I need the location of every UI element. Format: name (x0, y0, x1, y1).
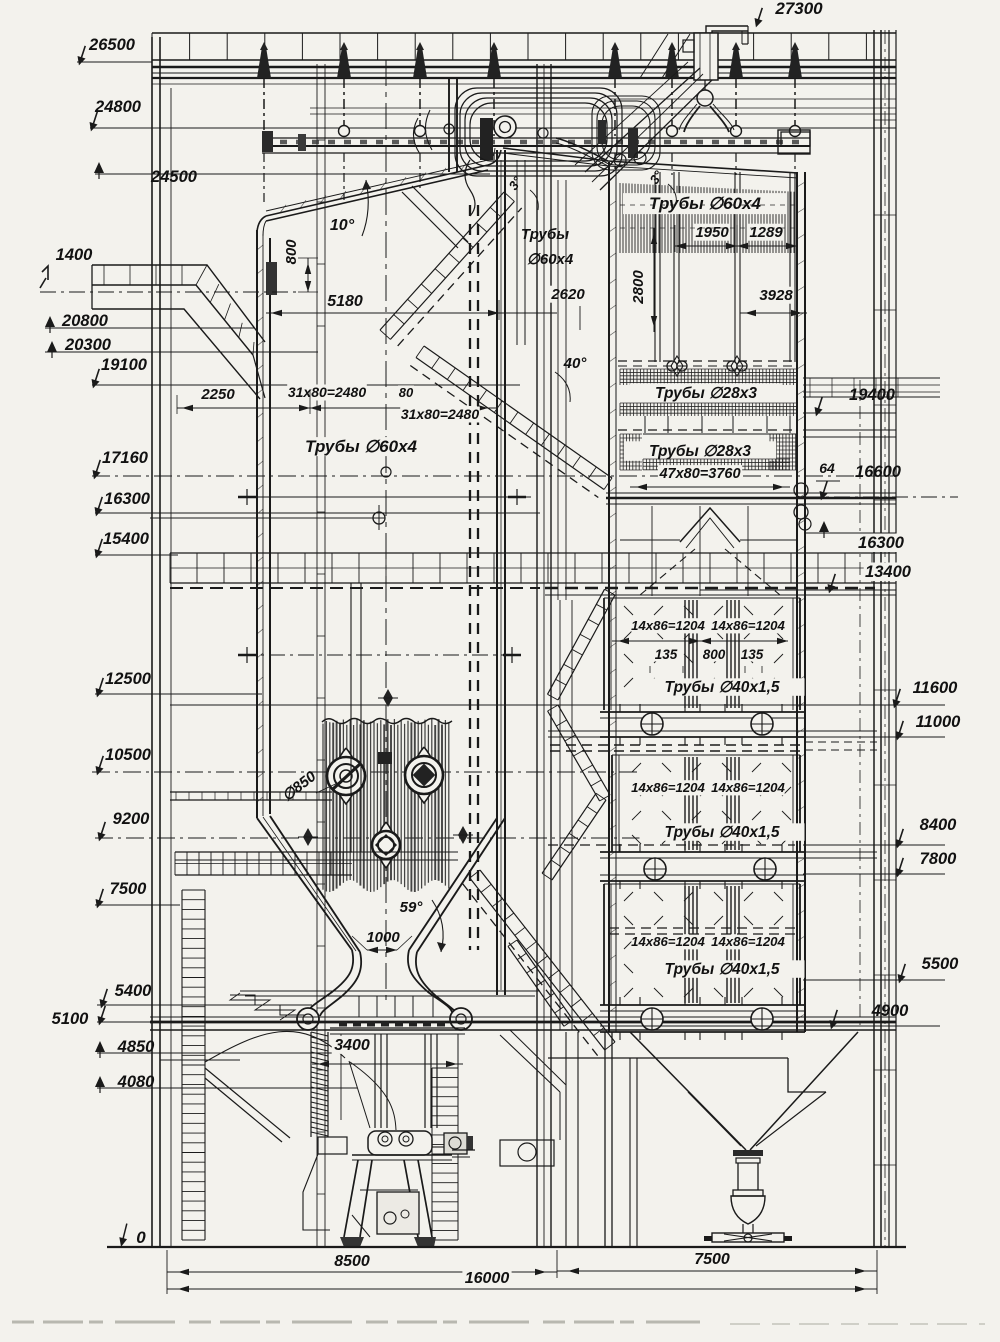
svg-text:5100: 5100 (52, 1010, 90, 1028)
svg-text:26500: 26500 (88, 36, 136, 54)
svg-text:14х86=1204: 14х86=1204 (631, 618, 705, 633)
svg-text:14х86=1204: 14х86=1204 (631, 934, 705, 949)
svg-text:20800: 20800 (61, 312, 109, 330)
svg-text:14х86=1204: 14х86=1204 (631, 780, 705, 795)
svg-text:47х80=3760: 47х80=3760 (658, 466, 740, 482)
svg-text:15400: 15400 (103, 530, 150, 548)
svg-text:3928: 3928 (759, 287, 793, 304)
svg-text:4080: 4080 (117, 1073, 156, 1091)
svg-text:1000: 1000 (366, 929, 400, 946)
svg-text:7500: 7500 (694, 1251, 730, 1268)
svg-text:12500: 12500 (105, 670, 152, 688)
svg-text:59°: 59° (400, 899, 424, 916)
svg-text:13400: 13400 (865, 563, 912, 581)
svg-text:11000: 11000 (916, 713, 961, 731)
svg-text:2800: 2800 (630, 270, 647, 305)
svg-text:5500: 5500 (922, 955, 960, 973)
svg-text:4850: 4850 (117, 1038, 156, 1056)
svg-text:∅60х4: ∅60х4 (527, 251, 574, 268)
svg-text:800: 800 (283, 239, 300, 265)
svg-text:800: 800 (703, 647, 726, 662)
svg-text:135: 135 (741, 647, 764, 662)
svg-text:135: 135 (655, 647, 678, 662)
svg-text:27300: 27300 (774, 0, 823, 18)
svg-text:11600: 11600 (913, 679, 958, 697)
svg-text:4900: 4900 (871, 1002, 910, 1020)
svg-text:Трубы ∅28х3: Трубы ∅28х3 (649, 443, 751, 460)
svg-text:16000: 16000 (465, 1270, 510, 1287)
svg-text:19100: 19100 (101, 356, 148, 374)
svg-text:31х80=2480: 31х80=2480 (288, 384, 366, 400)
svg-text:8400: 8400 (920, 816, 958, 834)
svg-text:16300: 16300 (104, 490, 151, 508)
svg-text:14х86=1204: 14х86=1204 (711, 780, 785, 795)
svg-text:16600: 16600 (855, 463, 902, 481)
svg-text:Трубы ∅60х4: Трубы ∅60х4 (649, 194, 762, 213)
svg-text:10°: 10° (330, 217, 355, 234)
svg-text:1400: 1400 (56, 246, 94, 264)
svg-text:Трубы ∅28х3: Трубы ∅28х3 (655, 385, 757, 402)
svg-text:24500: 24500 (150, 168, 198, 186)
svg-text:2620: 2620 (550, 286, 585, 303)
svg-text:9200: 9200 (113, 810, 151, 828)
svg-text:16300: 16300 (858, 534, 905, 552)
svg-text:Трубы ∅40х1,5: Трубы ∅40х1,5 (664, 679, 779, 696)
svg-text:Трубы: Трубы (521, 226, 569, 243)
svg-text:10500: 10500 (105, 746, 152, 764)
svg-text:20300: 20300 (64, 336, 112, 354)
svg-text:14х86=1204: 14х86=1204 (711, 934, 785, 949)
svg-text:1289: 1289 (749, 224, 783, 241)
svg-text:Трубы ∅40х1,5: Трубы ∅40х1,5 (664, 961, 779, 978)
svg-text:5180: 5180 (327, 293, 363, 310)
svg-text:Трубы ∅60х4: Трубы ∅60х4 (305, 437, 418, 456)
svg-text:2250: 2250 (200, 386, 235, 403)
svg-text:31х80=2480: 31х80=2480 (401, 406, 479, 422)
svg-text:64: 64 (819, 460, 835, 476)
svg-text:1950: 1950 (695, 224, 729, 241)
svg-text:14х86=1204: 14х86=1204 (711, 618, 785, 633)
svg-text:Трубы ∅40х1,5: Трубы ∅40х1,5 (664, 824, 779, 841)
svg-text:19400: 19400 (849, 386, 896, 404)
svg-text:7800: 7800 (920, 850, 958, 868)
svg-text:7500: 7500 (110, 880, 148, 898)
svg-text:80: 80 (399, 385, 414, 400)
svg-text:8500: 8500 (334, 1253, 370, 1270)
svg-text:24800: 24800 (94, 98, 142, 116)
svg-text:5400: 5400 (115, 982, 153, 1000)
svg-text:17160: 17160 (102, 449, 149, 467)
svg-text:0: 0 (136, 1228, 146, 1247)
svg-text:3400: 3400 (334, 1037, 370, 1054)
